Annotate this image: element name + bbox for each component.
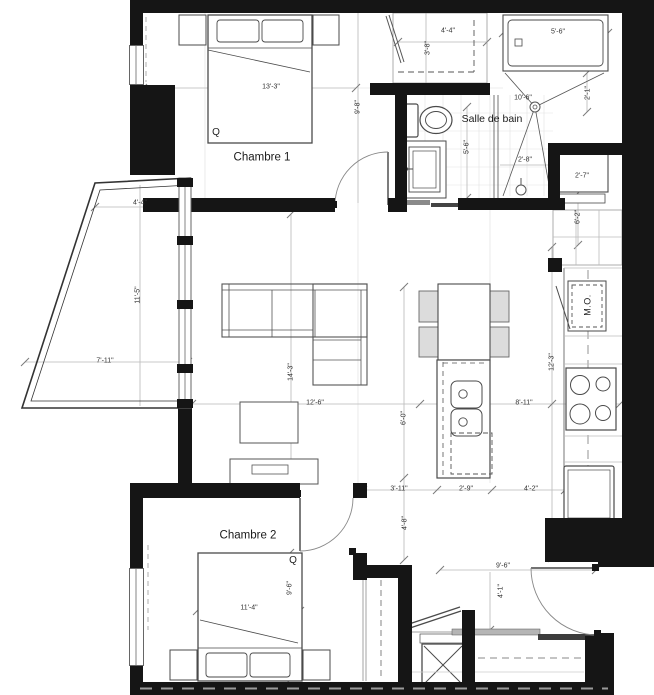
microwave-label: M.O. bbox=[584, 294, 593, 316]
dim-shower-diag: 10'-6" bbox=[514, 95, 532, 102]
mullion bbox=[177, 236, 193, 245]
shower-head bbox=[516, 185, 526, 195]
dim-tub-width: 5'-6" bbox=[551, 29, 565, 36]
dim-living-height: 14'-3" bbox=[288, 363, 295, 381]
mullion bbox=[177, 364, 193, 373]
pillow bbox=[217, 20, 259, 42]
balcony bbox=[22, 178, 190, 408]
dim-island-side: 6'-0" bbox=[401, 411, 408, 425]
door-chambre2 bbox=[294, 490, 356, 555]
room-label-chambre1: Chambre 1 bbox=[234, 152, 291, 164]
utility-door bbox=[406, 607, 460, 625]
dim-kitchen-height: 12'-3" bbox=[549, 353, 556, 371]
mullion bbox=[177, 300, 193, 309]
dim-chambre2-height: 9'-6" bbox=[287, 581, 294, 595]
nightstand bbox=[170, 650, 197, 680]
door-chambre1 bbox=[330, 152, 388, 208]
kitchen-island bbox=[437, 360, 492, 478]
bed-chambre1 bbox=[179, 15, 339, 143]
chair bbox=[419, 291, 438, 322]
nightstand bbox=[313, 15, 339, 45]
dim-laundry-width: 2'-7" bbox=[575, 173, 589, 180]
dim-shower-side: 2'-1" bbox=[585, 86, 592, 100]
window-chambre1 bbox=[130, 46, 144, 85]
pillow bbox=[206, 653, 247, 677]
dim-entry-height: 4'-1" bbox=[498, 584, 505, 598]
chambre2-closet bbox=[363, 578, 381, 681]
chair bbox=[490, 291, 509, 322]
mullion bbox=[177, 178, 193, 187]
dim-bath-height: 5'-6" bbox=[464, 140, 471, 154]
dim-shower-width: 2'-8" bbox=[518, 157, 532, 164]
dim-closet1-depth: 3'-8" bbox=[425, 41, 432, 55]
chair bbox=[490, 327, 509, 357]
pillow bbox=[262, 20, 303, 42]
dim-chambre2-width: 11'-4" bbox=[240, 605, 257, 612]
bathroom-pocket-door bbox=[403, 200, 458, 207]
floor-plan-drawing bbox=[0, 0, 654, 695]
bed-chambre2 bbox=[170, 553, 330, 681]
utility-closet bbox=[406, 607, 468, 686]
dim-living-width: 12'-6" bbox=[306, 400, 324, 407]
utility-door bbox=[407, 611, 461, 629]
refrigerator bbox=[564, 466, 614, 522]
dim-kitchen-aisle: 4'-2" bbox=[524, 486, 538, 493]
pantry-shelving bbox=[553, 210, 622, 265]
dim-chambre1-width: 13'-3" bbox=[262, 84, 280, 91]
bed1-size-label: Q bbox=[212, 128, 220, 138]
dim-hall-height: 4'-8" bbox=[402, 516, 409, 530]
dim-hall-width: 3'-11" bbox=[390, 486, 407, 493]
pillow bbox=[250, 653, 290, 677]
dining-table bbox=[438, 284, 490, 360]
tv-console bbox=[230, 459, 318, 484]
chair bbox=[419, 327, 438, 357]
dim-laundry-height: 6'-2" bbox=[575, 210, 582, 224]
window-chambre2 bbox=[130, 569, 144, 666]
dim-island-width: 2'-9" bbox=[459, 486, 473, 493]
closet-door bbox=[386, 16, 401, 63]
floor-plan: Chambre 1 Chambre 2 Salle de bain Q Q M.… bbox=[0, 0, 654, 695]
coffee-table bbox=[240, 402, 298, 443]
nightstand bbox=[303, 650, 330, 680]
dim-balcony-bottom: 7'-11" bbox=[96, 358, 113, 365]
vanity bbox=[403, 141, 446, 198]
nightstand bbox=[179, 15, 206, 45]
dim-balcony-top: 4'-4" bbox=[133, 200, 147, 207]
bathtub bbox=[503, 15, 608, 71]
dim-kitchen-width: 8'-11" bbox=[515, 400, 532, 407]
dining-set bbox=[419, 284, 509, 360]
mullion bbox=[177, 399, 193, 408]
sofa bbox=[222, 284, 367, 385]
bed2-size-label: Q bbox=[289, 556, 297, 566]
dim-entry-width: 9'-6" bbox=[496, 563, 510, 570]
walkin-closet bbox=[386, 13, 487, 83]
dim-balcony-height: 11'-5" bbox=[135, 286, 142, 303]
stove bbox=[566, 368, 616, 430]
entry-door bbox=[531, 564, 601, 637]
room-label-chambre2: Chambre 2 bbox=[220, 530, 277, 542]
room-label-bathroom: Salle de bain bbox=[462, 114, 523, 125]
dim-closet1-width: 4'-4" bbox=[441, 28, 455, 35]
shower-drain bbox=[530, 102, 540, 112]
dim-chambre1-height: 9'-8" bbox=[355, 100, 362, 114]
tub-drain bbox=[515, 39, 522, 46]
